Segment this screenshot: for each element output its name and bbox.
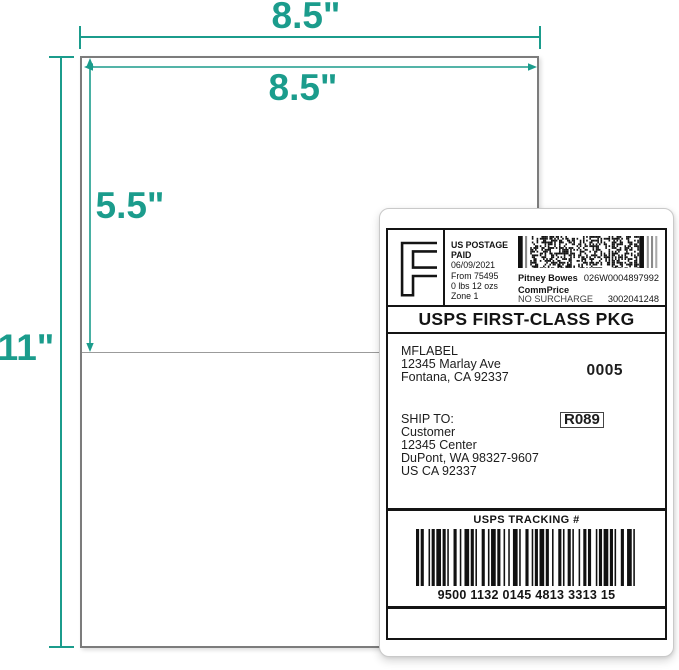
- postage-from-zip: From 75495: [451, 271, 516, 281]
- service-class-banner: USPS FIRST-CLASS PKG: [388, 307, 665, 334]
- label-bottom-blank: [388, 609, 665, 638]
- meter-carrier: Pitney Bowes: [518, 274, 578, 284]
- meter-account-number: 3002041248: [608, 295, 659, 305]
- postage-line-us-postage: US POSTAGE: [451, 240, 516, 250]
- batch-number: 0005: [587, 364, 623, 377]
- sheet-width-label: 8.5": [251, 0, 361, 34]
- sheet-height-label: 11": [0, 329, 56, 366]
- label-height-label: 5.5": [75, 187, 185, 224]
- postage-info-block: US POSTAGE PAID 06/09/2021 From 75495 0 …: [445, 230, 516, 305]
- ship-to-country: US CA 92337: [401, 465, 665, 478]
- postage-header-row: F US POSTAGE PAID 06/09/2021 From 75495 …: [388, 230, 665, 307]
- postage-date: 06/09/2021: [451, 260, 516, 270]
- meter-id: 026W0004897992: [584, 274, 659, 284]
- label-sheet-diagram: 8.5" 8.5" 5.5" 11" F US POSTAGE PAID 06/…: [0, 0, 679, 670]
- ship-to-address: SHIP TO: Customer 12345 Center DuPont, W…: [401, 413, 665, 479]
- svg-text:F: F: [397, 238, 437, 298]
- from-address: MFLABEL 12345 Marlay Ave Fontana, CA 923…: [401, 345, 665, 385]
- route-code-box: R089: [560, 412, 604, 428]
- outlined-f-glyph: F: [395, 238, 437, 298]
- meter-no-surcharge: NO SURCHARGE: [518, 295, 593, 305]
- shipping-label: F US POSTAGE PAID 06/09/2021 From 75495 …: [386, 228, 667, 640]
- postage-weight: 0 lbs 12 ozs: [451, 281, 516, 291]
- ship-to-heading: SHIP TO:: [401, 413, 665, 426]
- address-section: MFLABEL 12345 Marlay Ave Fontana, CA 923…: [388, 334, 665, 508]
- from-city: Fontana, CA 92337: [401, 371, 665, 384]
- meter-account-row: CommPrice NO SURCHARGE 3002041248: [518, 286, 659, 305]
- meter-barcode: [518, 236, 659, 268]
- tracking-heading: USPS TRACKING #: [473, 514, 579, 526]
- postage-line-paid: PAID: [451, 250, 516, 260]
- shipping-label-card: F US POSTAGE PAID 06/09/2021 From 75495 …: [379, 208, 674, 657]
- postage-class-letter-cell: F: [388, 230, 445, 305]
- postage-zone: Zone 1: [451, 291, 516, 301]
- tracking-barcode: [416, 529, 638, 586]
- tracking-section: USPS TRACKING # 9500 1132 0145 4813 3313…: [388, 511, 665, 606]
- tracking-number: 9500 1132 0145 4813 3313 15: [438, 588, 616, 602]
- meter-carrier-row: Pitney Bowes 026W0004897992: [518, 274, 659, 284]
- label-width-label: 8.5": [248, 69, 358, 106]
- meter-block: Pitney Bowes 026W0004897992 CommPrice NO…: [516, 230, 665, 305]
